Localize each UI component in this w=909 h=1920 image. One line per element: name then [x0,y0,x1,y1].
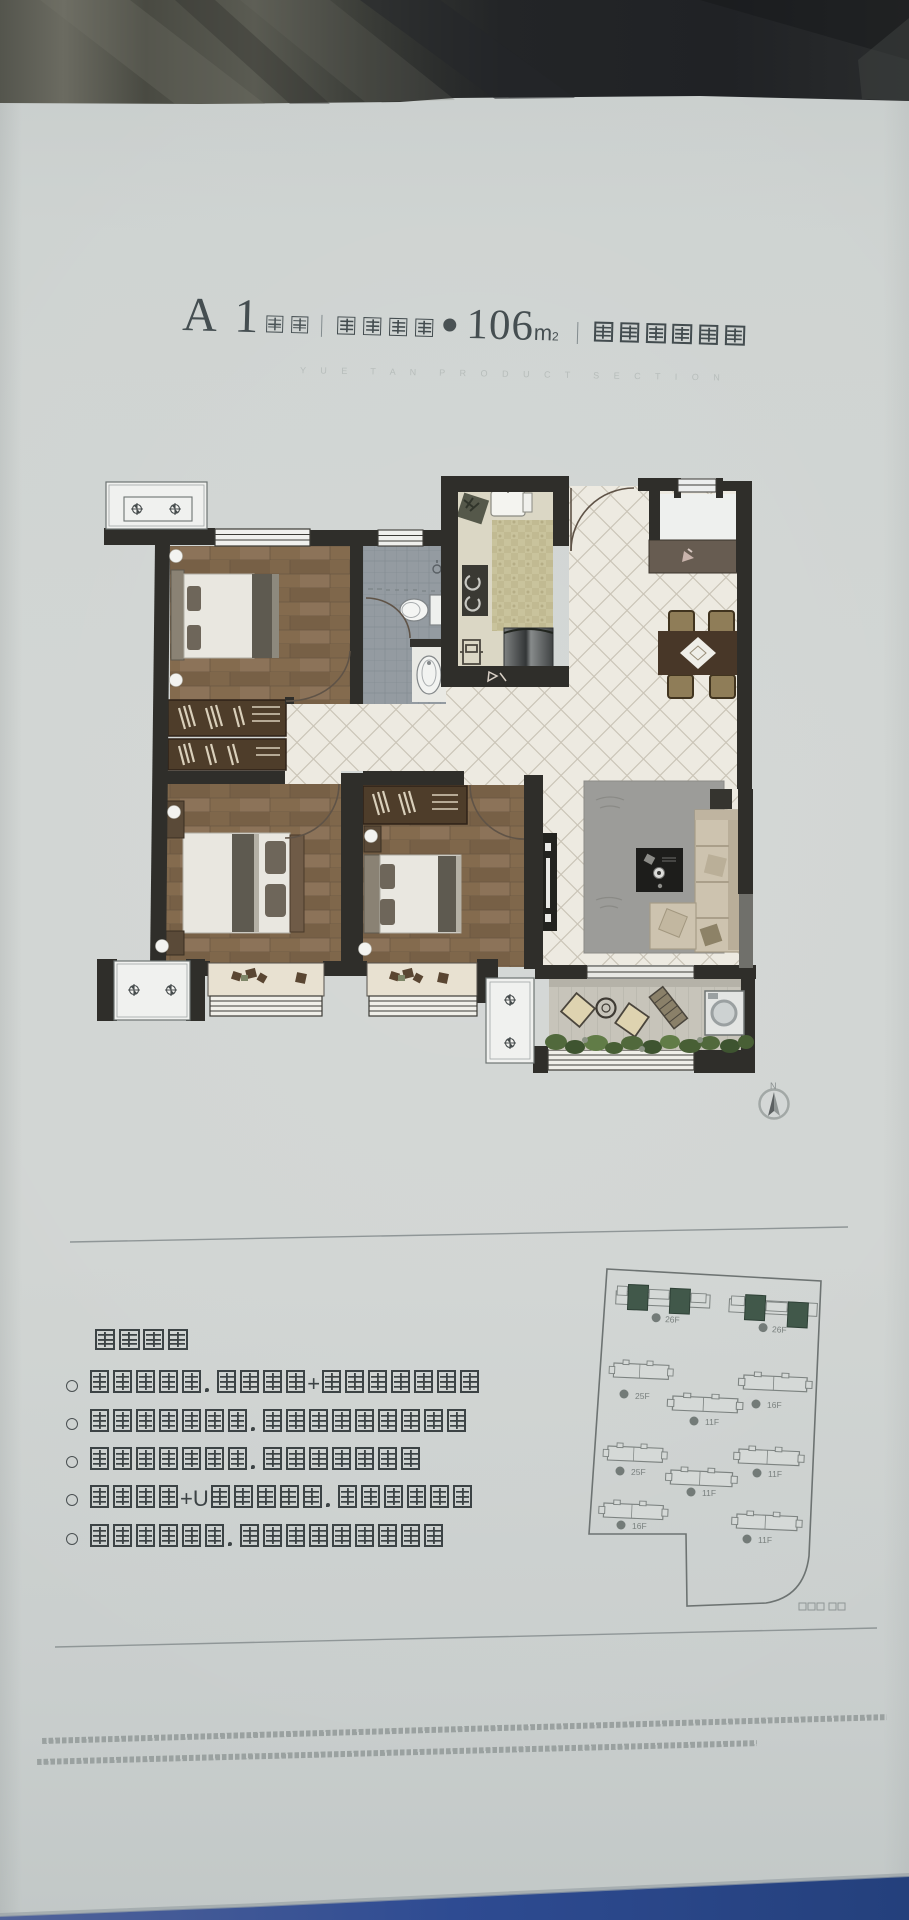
svg-text:26F: 26F [665,1314,680,1325]
svg-text:26F: 26F [772,1324,787,1335]
svg-text:25F: 25F [631,1467,646,1477]
svg-text:11F: 11F [758,1535,772,1545]
svg-text:16F: 16F [632,1521,647,1531]
svg-text:11F: 11F [705,1417,719,1427]
svg-text:11F: 11F [702,1488,716,1498]
svg-text:25F: 25F [635,1391,650,1401]
svg-text:16F: 16F [767,1400,782,1410]
svg-text:11F: 11F [768,1469,782,1479]
